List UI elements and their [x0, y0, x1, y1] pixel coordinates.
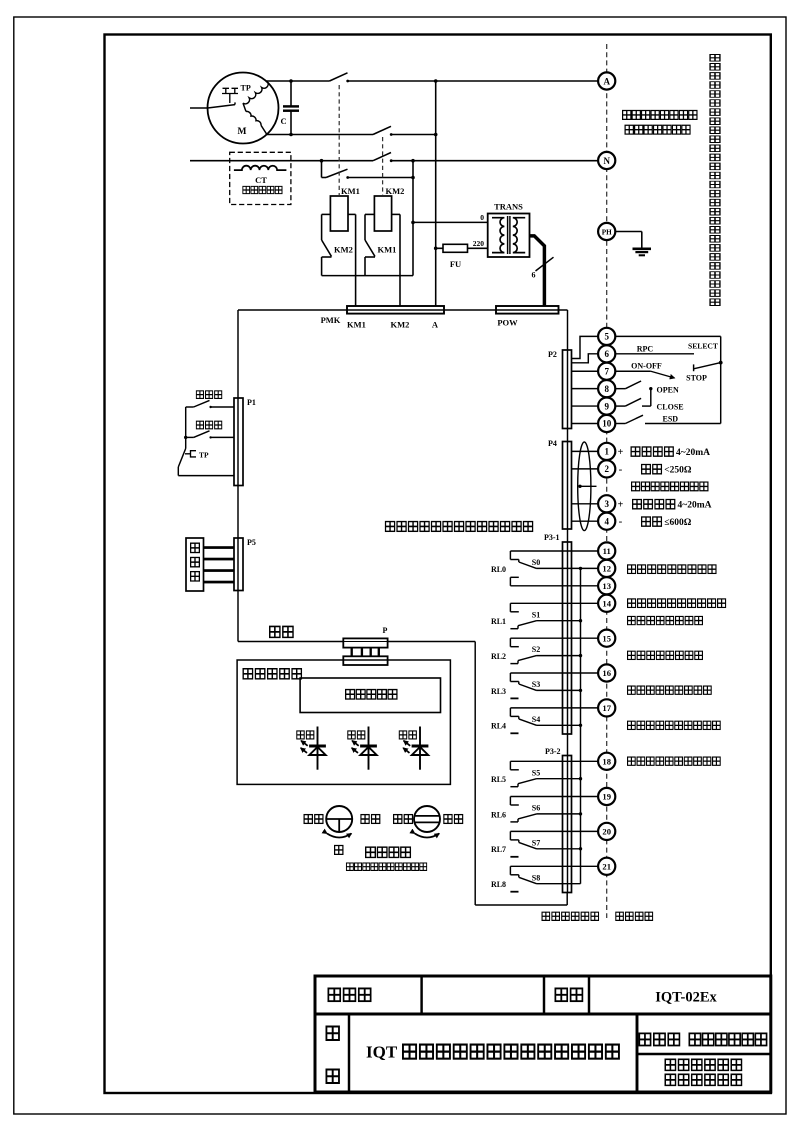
svg-text:KM2: KM2 [391, 320, 410, 330]
svg-text:RL5: RL5 [491, 775, 506, 784]
svg-text:7: 7 [604, 366, 609, 376]
svg-text:P3-2: P3-2 [545, 747, 561, 756]
svg-text:ON-OFF: ON-OFF [631, 362, 662, 371]
svg-text:P5: P5 [247, 538, 256, 547]
svg-text:S6: S6 [532, 804, 540, 813]
svg-text:PH: PH [602, 228, 612, 236]
svg-text:RPC: RPC [637, 345, 654, 354]
svg-text:18: 18 [602, 757, 611, 767]
svg-text:TRANS: TRANS [494, 202, 523, 212]
svg-text:N: N [603, 156, 610, 166]
svg-text:IQT: IQT [366, 1043, 398, 1062]
svg-text:ESD: ESD [663, 415, 679, 424]
svg-text:13: 13 [602, 581, 611, 591]
svg-text:16: 16 [602, 668, 611, 678]
svg-text:-: - [619, 463, 623, 475]
svg-text:A: A [603, 76, 610, 86]
svg-text:17: 17 [602, 703, 611, 713]
svg-text:S3: S3 [532, 680, 540, 689]
svg-text:S8: S8 [532, 873, 540, 882]
svg-text:14: 14 [602, 599, 611, 609]
svg-text:15: 15 [602, 633, 611, 643]
svg-text:C: C [281, 116, 287, 126]
svg-text:2: 2 [604, 464, 609, 474]
svg-text:+: + [618, 499, 624, 510]
svg-text:11: 11 [603, 546, 611, 556]
svg-text:M: M [238, 127, 247, 137]
svg-text:-: - [619, 516, 623, 528]
svg-text:<250Ω: <250Ω [664, 466, 692, 476]
svg-text:20: 20 [602, 827, 611, 837]
svg-text:RL8: RL8 [491, 880, 506, 889]
svg-text:CLOSE: CLOSE [657, 402, 684, 411]
svg-text:RL1: RL1 [491, 617, 506, 626]
svg-text:P1: P1 [247, 398, 256, 407]
svg-text:S2: S2 [532, 645, 540, 654]
svg-text:3: 3 [604, 499, 609, 509]
svg-text:≤600Ω: ≤600Ω [664, 518, 691, 528]
svg-text:21: 21 [602, 862, 611, 872]
svg-text:4: 4 [604, 516, 609, 526]
svg-text:RL7: RL7 [491, 845, 506, 854]
svg-text:FU: FU [450, 259, 461, 269]
svg-text:P: P [383, 626, 388, 635]
svg-text:TP: TP [241, 84, 251, 93]
svg-text:KM1: KM1 [347, 320, 366, 330]
svg-text:1: 1 [604, 447, 609, 457]
svg-text:S7: S7 [532, 838, 540, 847]
svg-text:+: + [618, 447, 624, 458]
svg-text:S0: S0 [532, 558, 540, 567]
svg-text:RL4: RL4 [491, 722, 506, 731]
svg-text:OPEN: OPEN [657, 385, 679, 394]
svg-text:P2: P2 [548, 350, 557, 359]
svg-text:KM1: KM1 [341, 186, 360, 196]
svg-text:12: 12 [602, 564, 611, 574]
svg-text:10: 10 [602, 419, 612, 429]
svg-text:KM2: KM2 [334, 245, 353, 255]
svg-text:8: 8 [604, 384, 609, 394]
svg-text:CT: CT [255, 175, 267, 185]
svg-text:9: 9 [604, 401, 609, 411]
svg-text:RL6: RL6 [491, 810, 506, 819]
svg-text:RL0: RL0 [491, 565, 506, 574]
svg-text:S5: S5 [532, 768, 540, 777]
svg-text:0: 0 [480, 213, 484, 222]
svg-text:4~20mA: 4~20mA [676, 448, 710, 458]
svg-text:POW: POW [497, 318, 518, 328]
svg-text:RL3: RL3 [491, 687, 506, 696]
svg-text:P4: P4 [548, 439, 557, 448]
svg-text:KM1: KM1 [378, 245, 397, 255]
svg-text:5: 5 [604, 332, 609, 342]
svg-text:IQT-02Ex: IQT-02Ex [655, 990, 717, 1006]
svg-text:SELECT: SELECT [688, 342, 718, 351]
svg-text:PMK: PMK [321, 315, 341, 325]
svg-text:4~20mA: 4~20mA [678, 501, 712, 511]
svg-text:S4: S4 [532, 715, 540, 724]
svg-text:6: 6 [532, 271, 536, 280]
svg-text:A: A [432, 320, 439, 330]
svg-text:220: 220 [473, 239, 485, 248]
svg-text:STOP: STOP [686, 374, 707, 383]
svg-text:P3-1: P3-1 [544, 533, 560, 542]
svg-text:TP: TP [199, 451, 209, 460]
svg-text:19: 19 [602, 792, 611, 802]
svg-text:6: 6 [604, 349, 609, 359]
svg-text:KM2: KM2 [386, 186, 405, 196]
svg-text:RL2: RL2 [491, 652, 506, 661]
svg-text:S1: S1 [532, 610, 540, 619]
